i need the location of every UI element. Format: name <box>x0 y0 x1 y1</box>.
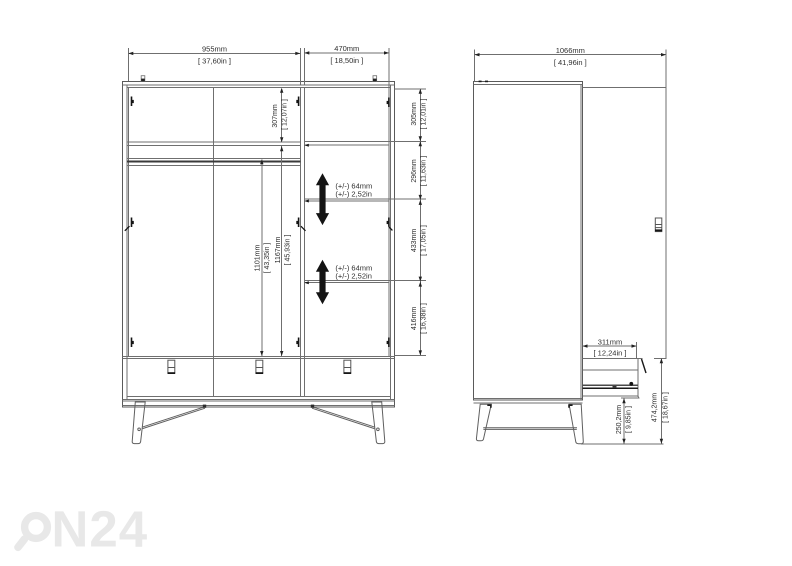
svg-text:955mm: 955mm <box>202 45 227 54</box>
svg-text:[ 18,67in ]: [ 18,67in ] <box>662 392 669 423</box>
svg-text:250,2mm: 250,2mm <box>616 405 623 434</box>
svg-text:[ 45,93in ]: [ 45,93in ] <box>285 235 292 266</box>
svg-text:296mm: 296mm <box>411 159 418 183</box>
svg-text:[ 11,63in ]: [ 11,63in ] <box>421 156 428 186</box>
svg-text:433mm: 433mm <box>411 229 418 253</box>
svg-text:(+/-) 2,52in: (+/-) 2,52in <box>335 271 371 280</box>
svg-text:N24: N24 <box>52 501 149 558</box>
svg-text:[ 41,96in ]: [ 41,96in ] <box>554 58 587 67</box>
svg-text:470mm: 470mm <box>334 44 359 53</box>
svg-text:[ 18,50in ]: [ 18,50in ] <box>330 56 363 65</box>
svg-text:[ 17,05in ]: [ 17,05in ] <box>421 225 428 256</box>
svg-text:[ 43,35in ]: [ 43,35in ] <box>264 243 271 274</box>
svg-text:[ 12,24in ]: [ 12,24in ] <box>594 349 627 358</box>
svg-text:311mm: 311mm <box>598 337 622 346</box>
svg-text:1101mm: 1101mm <box>254 244 261 271</box>
svg-text:1167mm: 1167mm <box>275 236 282 263</box>
svg-text:[ 12,01in ]: [ 12,01in ] <box>421 99 428 130</box>
svg-text:305mm: 305mm <box>411 102 418 126</box>
svg-text:[ 12,07in ]: [ 12,07in ] <box>282 99 289 130</box>
svg-text:416mm: 416mm <box>411 307 418 331</box>
svg-text:307mm: 307mm <box>272 104 279 128</box>
svg-text:(+/-) 2,52in: (+/-) 2,52in <box>335 189 371 198</box>
svg-text:[ 16,38in ]: [ 16,38in ] <box>421 303 428 334</box>
svg-text:1066mm: 1066mm <box>556 46 585 55</box>
svg-text:474,2mm: 474,2mm <box>652 393 659 422</box>
svg-text:[ 9,85in ]: [ 9,85in ] <box>626 406 633 433</box>
svg-text:[ 37,60in ]: [ 37,60in ] <box>198 56 231 65</box>
